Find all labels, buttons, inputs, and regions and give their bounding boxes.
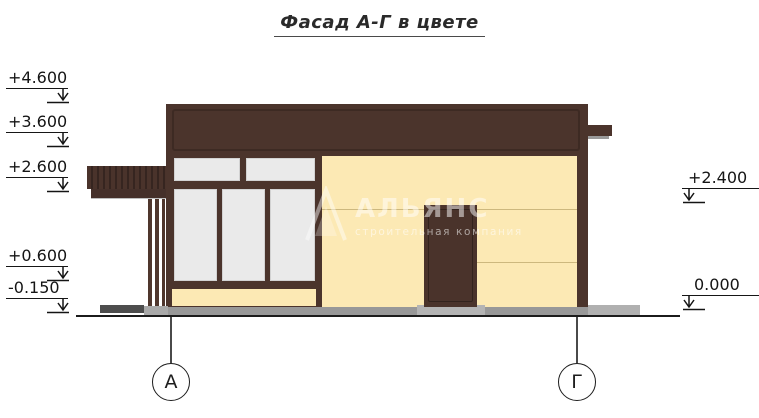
transom-pane-right (246, 158, 315, 181)
canopy-post (155, 198, 159, 306)
elevation-arrow-icon (47, 298, 73, 316)
axis-bubble-g: Г (558, 363, 596, 401)
elevation-arrow-icon (679, 295, 705, 313)
roof-fascia (166, 104, 588, 156)
elevation-marker-plus2400: +2.400 (682, 168, 759, 189)
entrance-door (424, 205, 477, 307)
elevation-value: -0.150 (6, 278, 68, 298)
ground-line (76, 315, 680, 317)
glazed-section (166, 156, 322, 308)
gutter-outlet (588, 125, 612, 136)
drawing-title: Фасад А-Г в цвете (274, 12, 485, 37)
elevation-value: +0.600 (6, 246, 68, 266)
elevation-marker-plus0600: +0.600 (6, 246, 68, 267)
wall-seam-lower (477, 262, 577, 263)
elevation-arrow-icon (47, 88, 73, 106)
axis-g-line (576, 317, 578, 363)
canopy-slats (87, 166, 166, 189)
elevation-arrow-icon (679, 188, 705, 206)
ground-strip (168, 307, 588, 315)
elevation-marker-plus3600: +3.600 (6, 112, 68, 133)
elevation-arrow-icon (47, 177, 73, 195)
elevation-marker-plus4600: +4.600 (6, 68, 68, 89)
axis-bubble-a: А (152, 363, 190, 401)
transom-pane-left (174, 158, 240, 181)
ground-strip-right (588, 305, 640, 315)
window-pane-3 (270, 189, 315, 281)
elevation-value: +4.600 (6, 68, 68, 88)
title-container: Фасад А-Г в цвете (0, 12, 759, 37)
right-corner-trim (577, 156, 588, 308)
elevation-marker-minus0150: -0.150 (6, 278, 68, 299)
elevation-value: +2.600 (6, 157, 68, 177)
elevation-value: +3.600 (6, 112, 68, 132)
elevation-marker-zero: 0.000 (682, 275, 759, 296)
elevation-arrow-icon (47, 132, 73, 150)
elevation-marker-plus2600: +2.600 (6, 157, 68, 178)
facade-elevation-drawing: Фасад А-Г в цвете АЛЬЯНС строительная ко… (0, 0, 759, 418)
canopy-band (91, 189, 166, 199)
canopy-post (162, 198, 165, 306)
window-pane-1 (174, 189, 217, 281)
ground-pad-dark (100, 305, 144, 313)
window-pane-2 (222, 189, 265, 281)
window-base-strip (172, 289, 316, 306)
elevation-value: +2.400 (682, 168, 759, 188)
canopy-post (148, 198, 152, 306)
axis-a-line (170, 317, 172, 363)
gutter-outlet-shadow (588, 136, 609, 139)
ground-pad-left (144, 306, 168, 315)
elevation-value: 0.000 (682, 275, 759, 295)
